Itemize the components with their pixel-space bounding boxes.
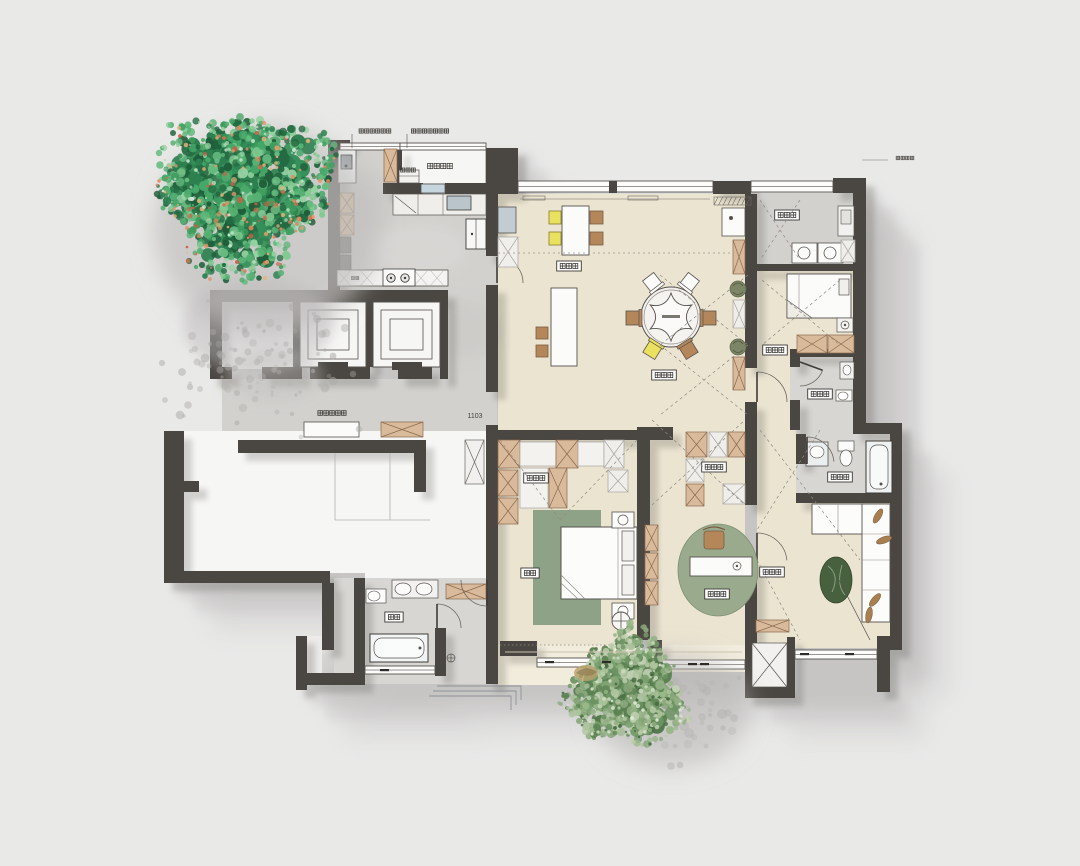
- svg-text:1103: 1103: [467, 413, 482, 420]
